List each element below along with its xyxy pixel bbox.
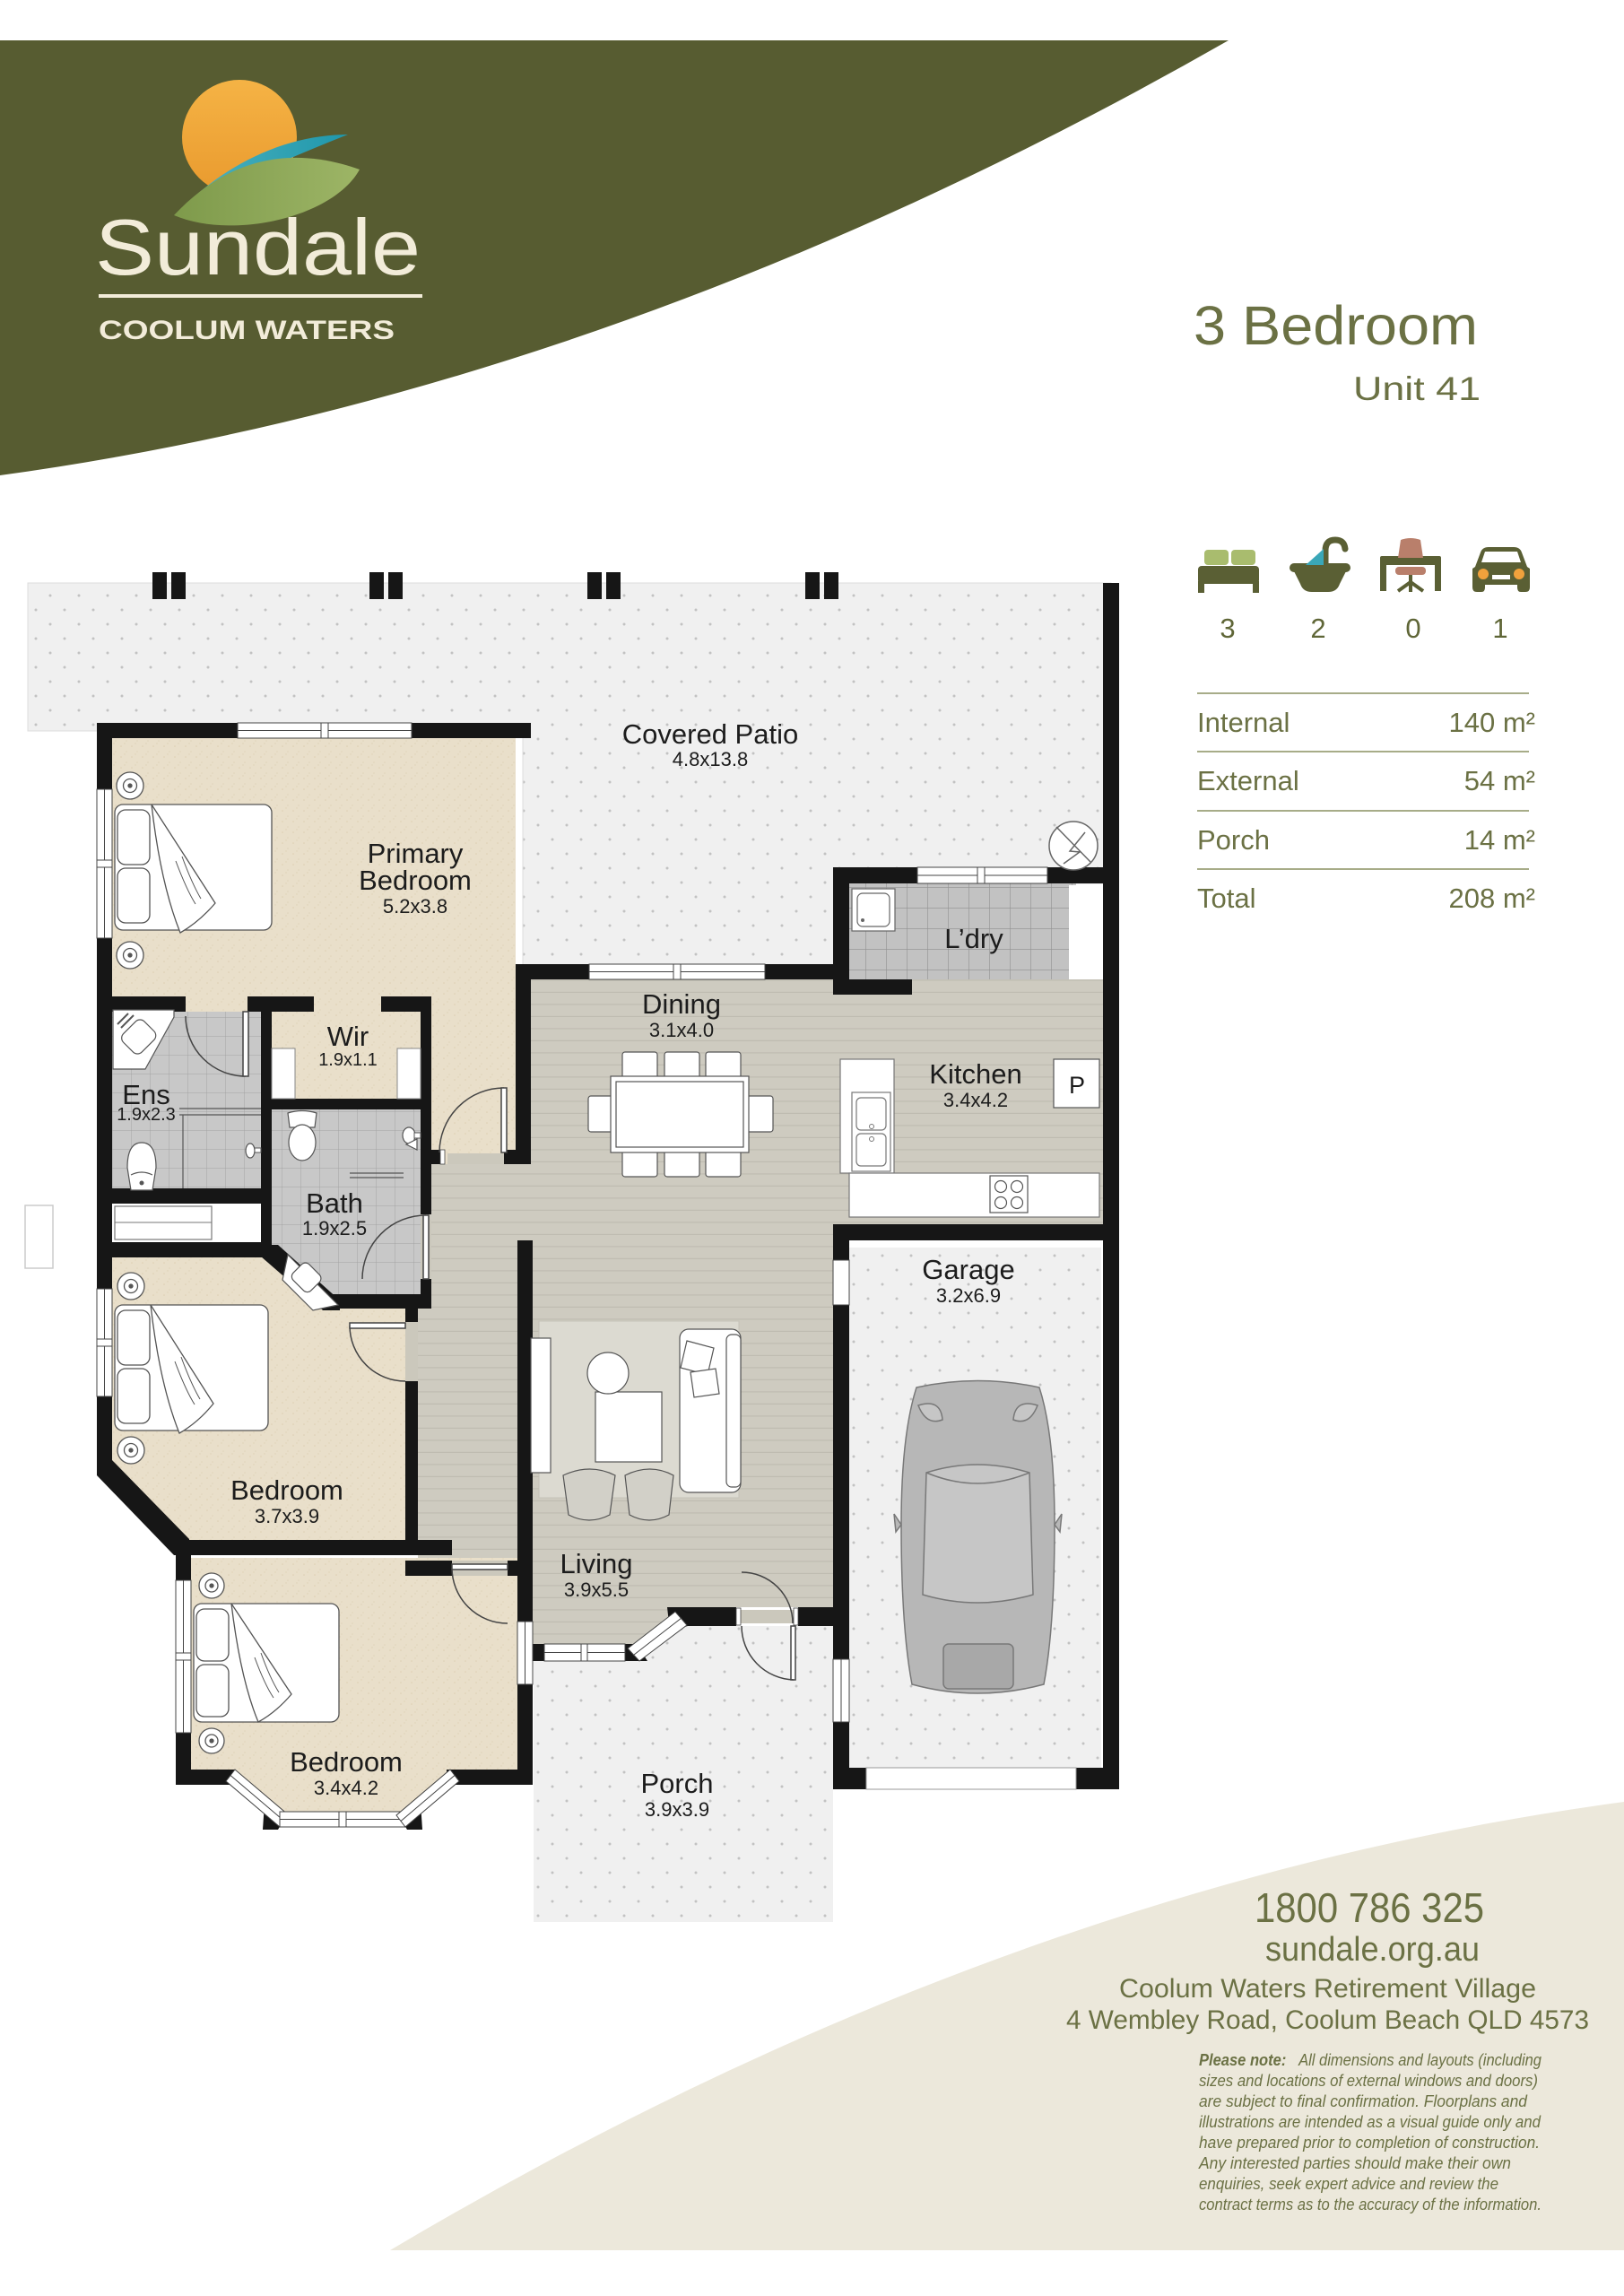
svg-text:Porch: Porch [641,1768,714,1799]
svg-text:Coolum Waters Retirement Villa: Coolum Waters Retirement Village [1119,1974,1536,2004]
svg-text:Bedroom: Bedroom [230,1474,343,1506]
svg-text:Bedroom: Bedroom [359,865,472,896]
svg-text:Sundale: Sundale [95,203,421,291]
svg-text:Total: Total [1197,883,1255,914]
svg-text:4.8x13.8: 4.8x13.8 [673,748,748,770]
svg-text:P: P [1069,1072,1085,1099]
svg-text:sizes and locations of externa: sizes and locations of external windows … [1199,2071,1538,2090]
svg-text:1.9x2.3: 1.9x2.3 [117,1105,176,1125]
svg-text:Any interested parties should: Any interested parties should make their… [1198,2153,1511,2172]
svg-text:enquiries, seek expert advice: enquiries, seek expert advice and review… [1199,2174,1498,2193]
svg-text:Unit 41: Unit 41 [1353,370,1481,407]
svg-text:3.9x3.9: 3.9x3.9 [645,1798,709,1821]
svg-text:sundale.org.au: sundale.org.au [1265,1931,1480,1969]
svg-text:Garage: Garage [922,1254,1014,1285]
svg-text:Porch: Porch [1197,824,1270,856]
svg-text:Internal: Internal [1197,707,1290,738]
svg-text:Covered Patio: Covered Patio [622,718,798,750]
svg-text:5.2x3.8: 5.2x3.8 [383,895,447,918]
svg-text:0: 0 [1405,613,1420,644]
svg-text:Dining: Dining [642,988,721,1020]
svg-text:Living: Living [560,1548,633,1579]
svg-text:1800 786 325: 1800 786 325 [1255,1884,1484,1931]
svg-text:COOLUM WATERS: COOLUM WATERS [99,316,395,345]
svg-text:illustrations are intended as: illustrations are intended as a visual g… [1199,2112,1541,2131]
svg-text:3.7x3.9: 3.7x3.9 [255,1505,319,1527]
svg-text:1.9x1.1: 1.9x1.1 [318,1050,378,1070]
svg-text:140 m²: 140 m² [1449,707,1535,738]
svg-text:3: 3 [1220,613,1235,644]
svg-text:Bath: Bath [306,1187,363,1219]
svg-text:3.2x6.9: 3.2x6.9 [936,1284,1001,1307]
svg-text:have prepared prior to complet: have prepared prior to completion of con… [1199,2133,1540,2152]
svg-text:Bedroom: Bedroom [290,1746,403,1778]
svg-text:Kitchen: Kitchen [929,1058,1021,1090]
svg-text:54 m²: 54 m² [1464,765,1535,796]
svg-text:are subject to final confirmat: are subject to final confirmation. Floor… [1199,2092,1528,2110]
svg-text:Please note: All dimensions: Please note: All dimensions and layouts … [1199,2050,1542,2069]
svg-text:208 m²: 208 m² [1449,883,1535,914]
svg-text:3.4x4.2: 3.4x4.2 [314,1777,378,1799]
svg-text:External: External [1197,765,1299,796]
svg-text:3.4x4.2: 3.4x4.2 [943,1089,1008,1111]
svg-text:3.9x5.5: 3.9x5.5 [564,1578,629,1601]
svg-text:4 Wembley Road, Coolum Beach Q: 4 Wembley Road, Coolum Beach QLD 4573 [1066,2005,1589,2035]
svg-text:Wir: Wir [327,1021,369,1052]
svg-text:3 Bedroom: 3 Bedroom [1194,295,1478,356]
svg-text:contract terms as to the accur: contract terms as to the accuracy of the… [1199,2195,1541,2213]
svg-text:L’dry: L’dry [944,923,1003,954]
svg-text:14 m²: 14 m² [1464,824,1535,856]
svg-text:3.1x4.0: 3.1x4.0 [649,1019,714,1041]
svg-text:1: 1 [1492,613,1507,644]
svg-text:1.9x2.5: 1.9x2.5 [302,1217,367,1239]
svg-text:2: 2 [1310,613,1325,644]
